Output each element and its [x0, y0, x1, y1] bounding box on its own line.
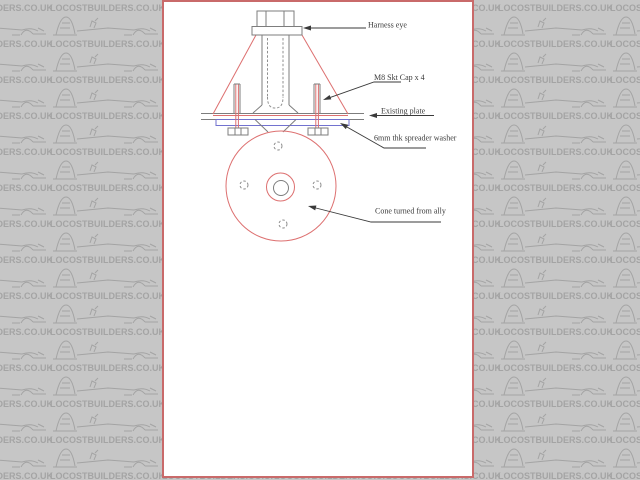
watermark-tile: LOCOSTBUILDERS.CO.UK [498, 255, 610, 291]
watermark-tile: LOCOSTBUILDERS.CO.UK [0, 363, 50, 399]
watermark-car-icon [50, 86, 162, 111]
watermark-tile: LOCOSTBUILDERS.CO.UK [610, 291, 640, 327]
watermark-car-icon [0, 410, 50, 435]
watermark-car-icon [610, 338, 640, 363]
watermark-tile: LOCOSTBUILDERS.CO.UK [498, 147, 610, 183]
watermark-car-icon [498, 266, 610, 291]
watermark-car-icon [50, 122, 162, 147]
watermark-tile: LOCOSTBUILDERS.CO.UK [610, 3, 640, 39]
watermark-text: LOCOSTBUILDERS.CO.UK [50, 111, 162, 121]
label-harness-eye: Harness eye [368, 21, 407, 30]
watermark-text: LOCOSTBUILDERS.CO.UK [498, 327, 610, 337]
watermark-text: LOCOSTBUILDERS.CO.UK [0, 255, 50, 265]
watermark-text: LOCOSTBUILDERS.CO.UK [0, 75, 50, 85]
watermark-tile: LOCOSTBUILDERS.CO.UK [0, 183, 50, 219]
assembly-drawing: Harness eye M8 Skt Cap x 4 Existing plat… [164, 2, 472, 476]
watermark-tile: LOCOSTBUILDERS.CO.UK [50, 111, 162, 147]
watermark-car-icon [0, 374, 50, 399]
watermark-car-icon [498, 230, 610, 255]
arrowhead [308, 206, 316, 211]
watermark-text: LOCOSTBUILDERS.CO.UK [0, 111, 50, 121]
watermark-tile: LOCOSTBUILDERS.CO.UK [0, 471, 50, 480]
watermark-car-icon [610, 302, 640, 327]
watermark-car-icon [498, 158, 610, 183]
watermark-tile: LOCOSTBUILDERS.CO.UK [498, 3, 610, 39]
watermark-text: LOCOSTBUILDERS.CO.UK [50, 435, 162, 445]
bolt-hole [240, 181, 248, 189]
bolt-hole [279, 220, 287, 228]
watermark-text: LOCOSTBUILDERS.CO.UK [498, 219, 610, 229]
watermark-text: LOCOSTBUILDERS.CO.UK [498, 471, 610, 480]
watermark-tile: LOCOSTBUILDERS.CO.UK [50, 363, 162, 399]
watermark-text: LOCOSTBUILDERS.CO.UK [50, 39, 162, 49]
watermark-car-icon [50, 266, 162, 291]
watermark-text: LOCOSTBUILDERS.CO.UK [610, 147, 640, 157]
watermark-text: LOCOSTBUILDERS.CO.UK [498, 3, 610, 13]
watermark-text: LOCOSTBUILDERS.CO.UK [50, 219, 162, 229]
watermark-text: LOCOSTBUILDERS.CO.UK [498, 183, 610, 193]
label-m8-screws: M8 Skt Cap x 4 [374, 73, 425, 82]
watermark-tile: LOCOSTBUILDERS.CO.UK [610, 255, 640, 291]
watermark-tile: LOCOSTBUILDERS.CO.UK [50, 399, 162, 435]
watermark-text: LOCOSTBUILDERS.CO.UK [0, 291, 50, 301]
watermark-car-icon [0, 230, 50, 255]
watermark-tile: LOCOSTBUILDERS.CO.UK [610, 147, 640, 183]
watermark-text: LOCOSTBUILDERS.CO.UK [0, 435, 50, 445]
watermark-car-icon [0, 302, 50, 327]
watermark-tile: LOCOSTBUILDERS.CO.UK [0, 147, 50, 183]
watermark-tile: LOCOSTBUILDERS.CO.UK [0, 291, 50, 327]
watermark-car-icon [0, 122, 50, 147]
watermark-car-icon [50, 302, 162, 327]
watermark-tile: LOCOSTBUILDERS.CO.UK [610, 399, 640, 435]
watermark-text: LOCOSTBUILDERS.CO.UK [498, 291, 610, 301]
watermark-car-icon [0, 86, 50, 111]
watermark-car-icon [610, 446, 640, 471]
watermark-car-icon [0, 446, 50, 471]
watermark-tile: LOCOSTBUILDERS.CO.UK [498, 363, 610, 399]
bolt-hole [274, 142, 282, 150]
watermark-tile: LOCOSTBUILDERS.CO.UK [498, 435, 610, 471]
watermark-tile: LOCOSTBUILDERS.CO.UK [610, 471, 640, 480]
document-page: Harness eye M8 Skt Cap x 4 Existing plat… [162, 0, 474, 478]
watermark-text: LOCOSTBUILDERS.CO.UK [610, 39, 640, 49]
watermark-tile: LOCOSTBUILDERS.CO.UK [610, 111, 640, 147]
watermark-text: LOCOSTBUILDERS.CO.UK [498, 39, 610, 49]
watermark-car-icon [610, 374, 640, 399]
watermark-car-icon [498, 86, 610, 111]
watermark-car-icon [498, 50, 610, 75]
watermark-tile: LOCOSTBUILDERS.CO.UK [610, 183, 640, 219]
label-spreader-washer: 6mm thk spreader washer [374, 134, 457, 143]
watermark-car-icon [498, 374, 610, 399]
watermark-tile: LOCOSTBUILDERS.CO.UK [498, 75, 610, 111]
arrowhead [340, 123, 348, 129]
watermark-text: LOCOSTBUILDERS.CO.UK [50, 399, 162, 409]
watermark-tile: LOCOSTBUILDERS.CO.UK [50, 471, 162, 480]
watermark-text: LOCOSTBUILDERS.CO.UK [50, 471, 162, 480]
screenshot-root: LOCOSTBUILDERS.CO.UKLOCOSTBUILDERS.CO.UK… [0, 0, 640, 480]
watermark-tile: LOCOSTBUILDERS.CO.UK [498, 399, 610, 435]
centre-hole [274, 181, 289, 196]
watermark-car-icon [50, 194, 162, 219]
watermark-tile: LOCOSTBUILDERS.CO.UK [498, 291, 610, 327]
watermark-text: LOCOSTBUILDERS.CO.UK [50, 255, 162, 265]
watermark-car-icon [0, 158, 50, 183]
watermark-tile: LOCOSTBUILDERS.CO.UK [50, 291, 162, 327]
watermark-tile: LOCOSTBUILDERS.CO.UK [498, 471, 610, 480]
watermark-car-icon [498, 302, 610, 327]
watermark-text: LOCOSTBUILDERS.CO.UK [498, 435, 610, 445]
watermark-tile: LOCOSTBUILDERS.CO.UK [50, 183, 162, 219]
leader-lines [303, 26, 441, 223]
cone-plan-view [226, 131, 336, 241]
label-cone: Cone turned from ally [375, 207, 446, 216]
watermark-tile: LOCOSTBUILDERS.CO.UK [610, 363, 640, 399]
watermark-text: LOCOSTBUILDERS.CO.UK [610, 471, 640, 480]
watermark-car-icon [610, 410, 640, 435]
watermark-tile: LOCOSTBUILDERS.CO.UK [0, 39, 50, 75]
watermark-car-icon [610, 158, 640, 183]
watermark-car-icon [0, 338, 50, 363]
watermark-car-icon [0, 50, 50, 75]
watermark-tile: LOCOSTBUILDERS.CO.UK [50, 147, 162, 183]
watermark-text: LOCOSTBUILDERS.CO.UK [50, 75, 162, 85]
watermark-text: LOCOSTBUILDERS.CO.UK [0, 147, 50, 157]
watermark-text: LOCOSTBUILDERS.CO.UK [0, 327, 50, 337]
watermark-tile: LOCOSTBUILDERS.CO.UK [50, 3, 162, 39]
label-existing-plate: Existing plate [381, 107, 426, 116]
watermark-car-icon [0, 194, 50, 219]
watermark-text: LOCOSTBUILDERS.CO.UK [610, 291, 640, 301]
watermark-car-icon [50, 410, 162, 435]
watermark-car-icon [50, 446, 162, 471]
watermark-tile: LOCOSTBUILDERS.CO.UK [610, 219, 640, 255]
watermark-text: LOCOSTBUILDERS.CO.UK [50, 183, 162, 193]
watermark-tile: LOCOSTBUILDERS.CO.UK [610, 39, 640, 75]
watermark-car-icon [0, 14, 50, 39]
watermark-text: LOCOSTBUILDERS.CO.UK [498, 255, 610, 265]
watermark-car-icon [50, 230, 162, 255]
hidden-thread-hole [268, 38, 284, 108]
watermark-car-icon [50, 338, 162, 363]
watermark-text: LOCOSTBUILDERS.CO.UK [0, 183, 50, 193]
watermark-tile: LOCOSTBUILDERS.CO.UK [0, 3, 50, 39]
watermark-tile: LOCOSTBUILDERS.CO.UK [0, 435, 50, 471]
watermark-tile: LOCOSTBUILDERS.CO.UK [50, 255, 162, 291]
watermark-tile: LOCOSTBUILDERS.CO.UK [50, 327, 162, 363]
watermark-tile: LOCOSTBUILDERS.CO.UK [498, 219, 610, 255]
watermark-tile: LOCOSTBUILDERS.CO.UK [498, 327, 610, 363]
watermark-tile: LOCOSTBUILDERS.CO.UK [498, 111, 610, 147]
watermark-text: LOCOSTBUILDERS.CO.UK [498, 75, 610, 85]
labels: Harness eye M8 Skt Cap x 4 Existing plat… [368, 21, 457, 216]
harness-eye-bar [252, 27, 302, 36]
watermark-text: LOCOSTBUILDERS.CO.UK [610, 435, 640, 445]
watermark-text: LOCOSTBUILDERS.CO.UK [50, 291, 162, 301]
watermark-text: LOCOSTBUILDERS.CO.UK [498, 111, 610, 121]
watermark-text: LOCOSTBUILDERS.CO.UK [610, 399, 640, 409]
watermark-tile: LOCOSTBUILDERS.CO.UK [50, 39, 162, 75]
watermark-car-icon [610, 122, 640, 147]
watermark-tile: LOCOSTBUILDERS.CO.UK [0, 399, 50, 435]
watermark-car-icon [498, 194, 610, 219]
watermark-text: LOCOSTBUILDERS.CO.UK [0, 399, 50, 409]
watermark-text: LOCOSTBUILDERS.CO.UK [0, 219, 50, 229]
leader-m8 [325, 82, 401, 99]
watermark-tile: LOCOSTBUILDERS.CO.UK [0, 111, 50, 147]
watermark-text: LOCOSTBUILDERS.CO.UK [498, 399, 610, 409]
watermark-text: LOCOSTBUILDERS.CO.UK [50, 147, 162, 157]
watermark-tile: LOCOSTBUILDERS.CO.UK [498, 39, 610, 75]
watermark-tile: LOCOSTBUILDERS.CO.UK [610, 75, 640, 111]
watermark-car-icon [50, 158, 162, 183]
watermark-car-icon [610, 194, 640, 219]
bolt-hole [313, 181, 321, 189]
watermark-tile: LOCOSTBUILDERS.CO.UK [0, 327, 50, 363]
watermark-car-icon [610, 50, 640, 75]
watermark-text: LOCOSTBUILDERS.CO.UK [610, 255, 640, 265]
arrowhead [303, 26, 311, 31]
watermark-car-icon [610, 14, 640, 39]
watermark-tile: LOCOSTBUILDERS.CO.UK [0, 255, 50, 291]
watermark-car-icon [610, 86, 640, 111]
watermark-tile: LOCOSTBUILDERS.CO.UK [50, 435, 162, 471]
watermark-text: LOCOSTBUILDERS.CO.UK [0, 363, 50, 373]
watermark-text: LOCOSTBUILDERS.CO.UK [50, 363, 162, 373]
watermark-car-icon [610, 230, 640, 255]
watermark-tile: LOCOSTBUILDERS.CO.UK [0, 75, 50, 111]
watermark-tile: LOCOSTBUILDERS.CO.UK [50, 75, 162, 111]
watermark-car-icon [610, 266, 640, 291]
watermark-text: LOCOSTBUILDERS.CO.UK [0, 471, 50, 480]
watermark-tile: LOCOSTBUILDERS.CO.UK [50, 219, 162, 255]
watermark-tile: LOCOSTBUILDERS.CO.UK [610, 327, 640, 363]
watermark-car-icon [498, 338, 610, 363]
watermark-text: LOCOSTBUILDERS.CO.UK [610, 111, 640, 121]
watermark-text: LOCOSTBUILDERS.CO.UK [0, 3, 50, 13]
watermark-tile: LOCOSTBUILDERS.CO.UK [610, 435, 640, 471]
watermark-tile: LOCOSTBUILDERS.CO.UK [498, 183, 610, 219]
watermark-text: LOCOSTBUILDERS.CO.UK [610, 327, 640, 337]
watermark-text: LOCOSTBUILDERS.CO.UK [498, 147, 610, 157]
watermark-car-icon [498, 122, 610, 147]
watermark-car-icon [498, 410, 610, 435]
watermark-car-icon [50, 374, 162, 399]
arrowhead [323, 95, 331, 100]
watermark-car-icon [498, 446, 610, 471]
watermark-text: LOCOSTBUILDERS.CO.UK [610, 75, 640, 85]
watermark-car-icon [498, 14, 610, 39]
arrowhead [369, 113, 377, 118]
watermark-tile: LOCOSTBUILDERS.CO.UK [0, 219, 50, 255]
watermark-text: LOCOSTBUILDERS.CO.UK [610, 3, 640, 13]
watermark-text: LOCOSTBUILDERS.CO.UK [0, 39, 50, 49]
watermark-car-icon [0, 266, 50, 291]
watermark-text: LOCOSTBUILDERS.CO.UK [50, 3, 162, 13]
watermark-text: LOCOSTBUILDERS.CO.UK [610, 363, 640, 373]
watermark-text: LOCOSTBUILDERS.CO.UK [498, 363, 610, 373]
watermark-text: LOCOSTBUILDERS.CO.UK [50, 327, 162, 337]
watermark-car-icon [50, 50, 162, 75]
watermark-text: LOCOSTBUILDERS.CO.UK [610, 183, 640, 193]
watermark-text: LOCOSTBUILDERS.CO.UK [610, 219, 640, 229]
existing-plate-lines [201, 114, 364, 120]
watermark-car-icon [50, 14, 162, 39]
m8-screws [234, 84, 320, 113]
cone-section-red [213, 35, 348, 128]
